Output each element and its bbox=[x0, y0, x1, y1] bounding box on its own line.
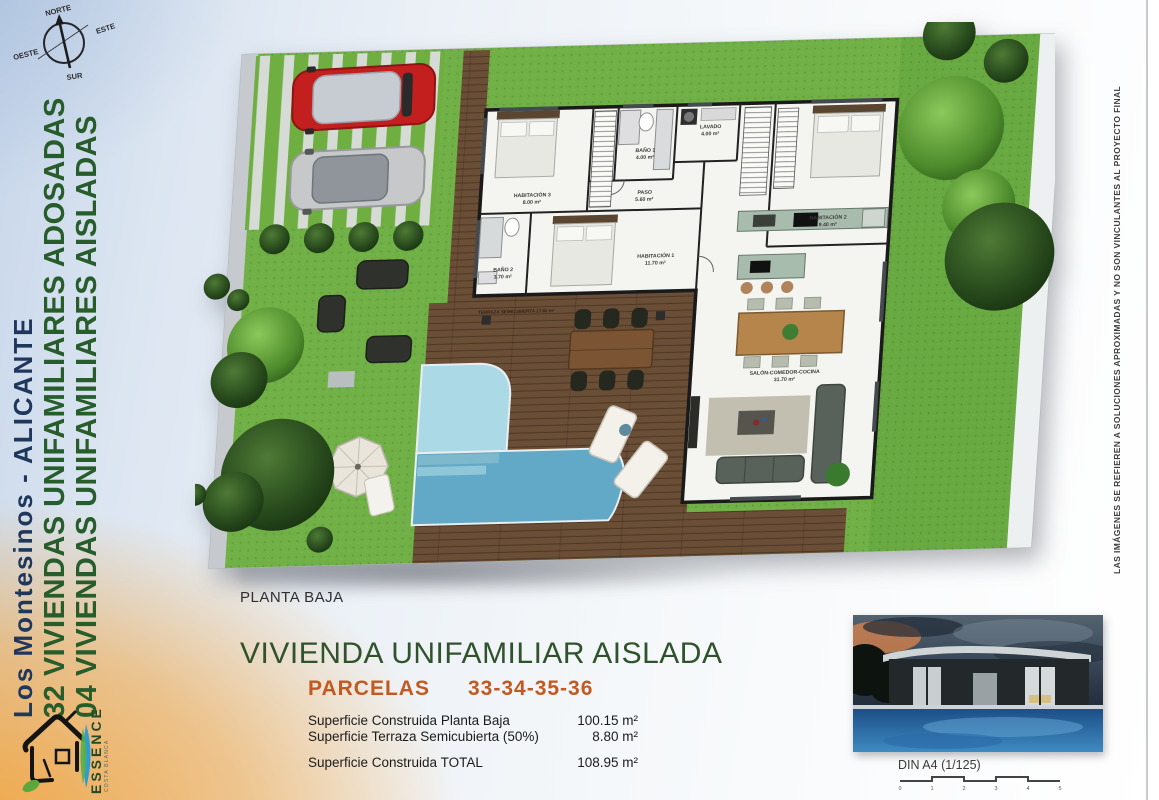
pool-step-2 bbox=[417, 465, 486, 476]
compass-east-label: ESTE bbox=[95, 21, 116, 36]
svg-text:5: 5 bbox=[1058, 786, 1061, 792]
room-label-paso: PASO bbox=[637, 190, 652, 196]
scale-ticks: 0 1 2 3 4 5 bbox=[898, 786, 1061, 792]
sidebar-line-aisladas: 04 VIVIENDAS UNIFAMILIARES AISLADAS bbox=[71, 115, 104, 718]
room-area-hab3: 8.00 m² bbox=[522, 200, 541, 206]
garden-sofa bbox=[366, 336, 412, 363]
deck-bottom-right bbox=[679, 508, 847, 556]
scale-block: DIN A4 (1/125) 0 1 2 3 4 5 bbox=[898, 758, 1073, 798]
deck-chair bbox=[602, 308, 620, 328]
brand-logo-icon bbox=[20, 708, 92, 798]
terrace-pillar bbox=[481, 316, 491, 325]
compass-south-label: SUR bbox=[66, 71, 84, 82]
room-label-lavado: LAVADO bbox=[700, 124, 722, 131]
photo-window bbox=[973, 673, 997, 705]
areas-row: Superficie Construida TOTAL 108.95 m² bbox=[308, 755, 638, 770]
site-plan: HABITACIÓN 3 8.00 m² BAÑO 1 4.00 m² LAVA… bbox=[195, 22, 1055, 582]
car-silver bbox=[289, 143, 425, 216]
scale-bar: 0 1 2 3 4 5 bbox=[898, 773, 1073, 795]
area-value: 108.95 m² bbox=[560, 755, 638, 770]
villa-photo bbox=[853, 615, 1103, 752]
deck-chair bbox=[598, 370, 616, 390]
brand-tagline: COSTA BLANCA bbox=[104, 740, 110, 792]
page-margin-right bbox=[1146, 0, 1159, 800]
room-area-hab1: 11.70 m² bbox=[645, 260, 666, 266]
site-plot-group: HABITACIÓN 3 8.00 m² BAÑO 1 4.00 m² LAVA… bbox=[195, 22, 1055, 569]
parcels-numbers: 33-34-35-36 bbox=[468, 677, 593, 701]
room-area-lavado: 4.00 m² bbox=[701, 131, 720, 137]
brand-name: ESSENCE bbox=[88, 706, 104, 794]
room-label-bano1: BAÑO 1 bbox=[635, 147, 655, 154]
svg-text:4: 4 bbox=[1026, 786, 1029, 792]
pool-step-1 bbox=[418, 453, 500, 465]
deck-chair bbox=[574, 309, 592, 329]
areas-row: Superficie Terraza Semicubierta (50%) 8.… bbox=[308, 729, 638, 744]
area-label: Superficie Construida Planta Baja bbox=[308, 713, 560, 728]
compass-west-label: OESTE bbox=[12, 47, 39, 62]
areas-row: Superficie Construida Planta Baja 100.15… bbox=[308, 713, 638, 728]
house-sketch-icon bbox=[25, 712, 83, 781]
area-value: 8.80 m² bbox=[560, 729, 638, 744]
garden-chair bbox=[317, 295, 346, 332]
area-label: Superficie Construida TOTAL bbox=[308, 755, 560, 770]
room-area-bano1: 4.00 m² bbox=[636, 155, 655, 161]
parcels-label: PARCELAS bbox=[308, 677, 430, 701]
page-title: VIVIENDA UNIFAMILIAR AISLADA bbox=[240, 637, 723, 671]
scale-label: DIN A4 (1/125) bbox=[898, 758, 1073, 772]
terrace-pillar bbox=[656, 311, 666, 320]
deck-chair bbox=[570, 371, 588, 391]
svg-text:3: 3 bbox=[994, 786, 997, 792]
photo-pool-edge bbox=[853, 705, 1103, 709]
area-value: 100.15 m² bbox=[560, 713, 638, 728]
bed-hab2 bbox=[808, 104, 886, 178]
compass-needle-tip bbox=[55, 14, 64, 26]
wardrobe bbox=[740, 107, 772, 196]
svg-text:1: 1 bbox=[930, 786, 933, 792]
deck-chair bbox=[627, 370, 645, 390]
plan-caption: PLANTA BAJA bbox=[240, 589, 344, 606]
bed-hab3 bbox=[493, 110, 560, 178]
sidebar-location: Los Montesinos - ALICANTE bbox=[8, 317, 39, 718]
disclaimer-text: LAS IMÁGENES SE REFIEREN A SOLUCIONES AP… bbox=[1112, 86, 1122, 574]
car-red bbox=[292, 59, 436, 135]
room-area-paso: 5.60 m² bbox=[635, 197, 654, 203]
room-area-hab2: 9.40 m² bbox=[818, 222, 837, 228]
brochure-page: { "document": { "caption": "PLANTA BAJA"… bbox=[0, 0, 1159, 800]
room-area-salon: 31.70 m² bbox=[773, 377, 795, 384]
bed-hab1 bbox=[549, 214, 618, 286]
sidebar-line-adosadas: 32 VIVIENDAS UNIFAMILIARES ADOSADAS bbox=[39, 97, 72, 718]
area-label: Superficie Terraza Semicubierta (50%) bbox=[308, 729, 560, 744]
deck-chair bbox=[631, 308, 649, 328]
room-area-bano2: 3.70 m² bbox=[493, 274, 512, 280]
garden-pad bbox=[328, 371, 355, 388]
compass-north-label: NORTE bbox=[44, 3, 72, 18]
svg-text:2: 2 bbox=[962, 786, 965, 792]
pool-shallow bbox=[416, 363, 512, 453]
garden-sofa bbox=[356, 260, 408, 289]
compass-rose: NORTE ESTE OESTE SUR bbox=[12, 2, 124, 86]
room-label-bano2: BAÑO 2 bbox=[493, 266, 513, 273]
svg-text:0: 0 bbox=[898, 786, 901, 792]
